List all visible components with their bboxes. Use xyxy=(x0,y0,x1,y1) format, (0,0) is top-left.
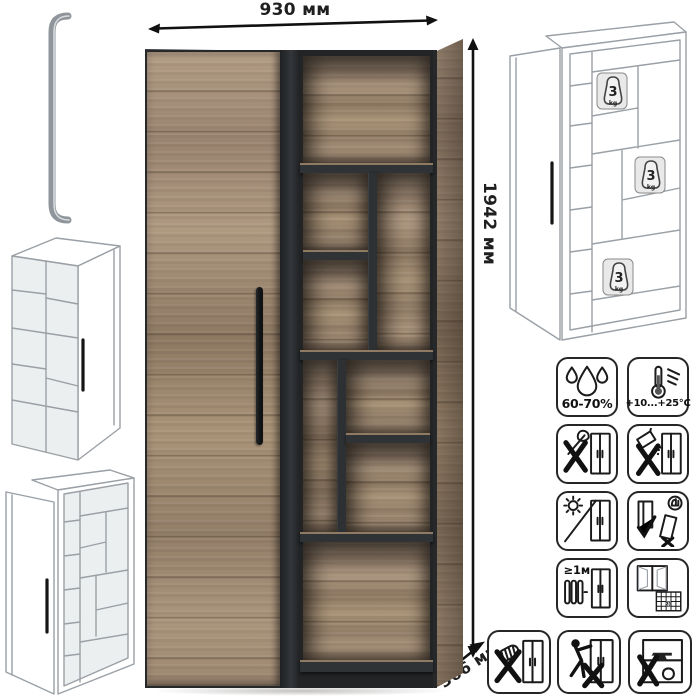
shelf-compartment xyxy=(303,173,368,250)
load-value: 3 xyxy=(646,169,655,184)
transport-upright-icon xyxy=(627,491,689,551)
height-dimension-arrow xyxy=(462,36,486,660)
ventilate-room-icon: 21 xyxy=(627,558,689,618)
shelf-compartment xyxy=(346,443,430,532)
cabinet-door xyxy=(147,52,280,686)
do-not-drag-icon xyxy=(557,630,621,694)
no-abrasive-glyph xyxy=(491,635,547,689)
humidity-icon: 60-70% xyxy=(556,357,618,417)
shelf xyxy=(300,163,433,173)
load-unit: kg xyxy=(647,184,655,191)
shelf xyxy=(346,433,430,443)
no-direct-sunlight-icon xyxy=(556,491,618,551)
cabinet-side-panel xyxy=(437,39,463,687)
temperature-icon: +10...+25°C xyxy=(627,357,689,417)
shelf-compartment xyxy=(346,360,430,433)
ventilation-window-glyph: 21 xyxy=(631,562,685,614)
shelf-load-badge: 3 kg xyxy=(603,259,633,295)
load-value: 3 xyxy=(608,85,617,100)
cabinet-open-shelving xyxy=(300,50,433,688)
load-unit: kg xyxy=(609,100,617,107)
shelf-load-badge: 3 kg xyxy=(635,157,665,193)
shelf-divider xyxy=(337,360,346,532)
no-sharp-tools-glyph xyxy=(560,428,614,480)
no-overload-glyph xyxy=(632,635,688,689)
keep-upright-glyph xyxy=(631,495,685,547)
cabinet-interior-line-drawing: 3 kg 3 kg 3 kg xyxy=(500,8,694,342)
cabinet-door-handle xyxy=(256,287,263,445)
width-dimension-arrow xyxy=(146,6,440,34)
shelf-compartment xyxy=(303,542,430,660)
cabinet-center-divider xyxy=(280,50,300,688)
no-spill-glyph xyxy=(631,428,685,480)
floor-shadow xyxy=(150,686,450,696)
heater-distance-icon: ≥1м xyxy=(556,558,618,618)
cabinet-bottom-panel xyxy=(300,660,433,672)
heater-distance-glyph: ≥1м xyxy=(560,562,614,614)
cabinet-photo xyxy=(145,35,463,691)
cabinet-front xyxy=(145,50,437,688)
shelf xyxy=(300,532,433,542)
no-spill-icon xyxy=(627,424,689,484)
handle-line-drawing xyxy=(28,6,84,232)
temperature-range-label: +10...+25°C xyxy=(625,399,690,409)
shelf-compartment xyxy=(303,56,430,163)
thermometer-icon xyxy=(631,365,685,399)
no-sunlight-glyph xyxy=(560,495,614,547)
shelf-load-badge: 3 kg xyxy=(597,73,627,109)
ventilation-day-label: 21 xyxy=(666,602,672,608)
shelf xyxy=(300,350,433,360)
shelf-compartment xyxy=(303,260,368,350)
do-not-overload-icon xyxy=(628,630,692,694)
load-value: 3 xyxy=(614,271,623,286)
shelf-compartment xyxy=(377,173,430,350)
cabinet-open-line-drawing xyxy=(0,460,142,700)
shelf-compartment xyxy=(303,360,337,532)
furniture-product-sheet: 930 мм 1942 мм 366 мм xyxy=(0,0,694,700)
humidity-range-label: 60-70% xyxy=(562,398,613,411)
cabinet-closed-line-drawing xyxy=(2,228,130,466)
load-unit: kg xyxy=(615,286,623,293)
shelf xyxy=(303,250,368,260)
no-abrasive-cleaners-icon xyxy=(487,630,551,694)
no-drag-glyph xyxy=(561,635,617,689)
water-drops-icon xyxy=(560,364,614,398)
heater-distance-label: ≥1м xyxy=(563,563,590,577)
shelf-divider xyxy=(368,173,377,350)
no-sharp-tools-icon xyxy=(556,424,618,484)
